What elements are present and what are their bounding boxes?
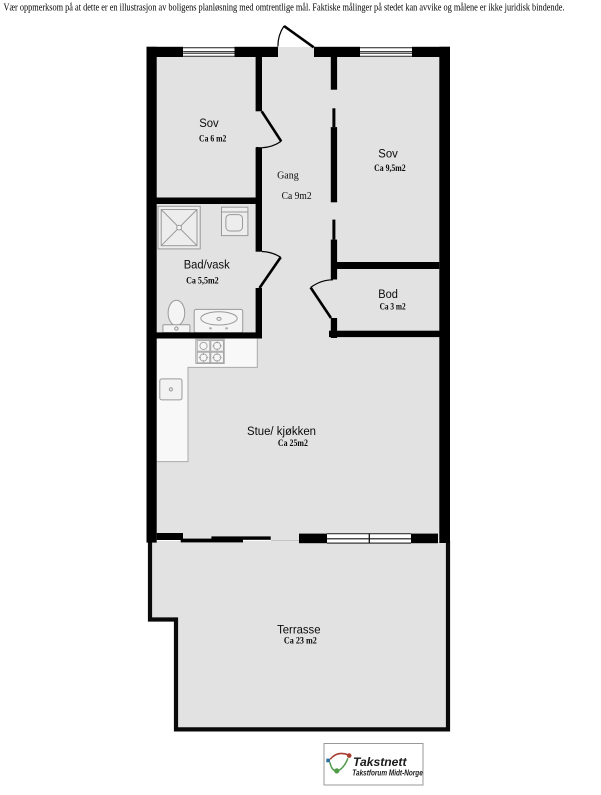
svg-text:Takstnett: Takstnett (353, 755, 408, 769)
svg-text:Gang: Gang (277, 169, 299, 181)
svg-text:Takstforum Midt-Norge: Takstforum Midt-Norge (352, 768, 423, 777)
svg-text:Bod: Bod (378, 287, 398, 301)
svg-text:Stue/ kjøkken: Stue/ kjøkken (247, 424, 316, 438)
svg-text:Bad/vask: Bad/vask (184, 257, 231, 271)
svg-text:Sov: Sov (199, 116, 219, 130)
svg-text:Ca 5,5m2: Ca 5,5m2 (186, 277, 219, 287)
svg-text:Ca 25m2: Ca 25m2 (278, 439, 308, 449)
svg-text:Sov: Sov (378, 147, 398, 161)
svg-text:Ca 9m2: Ca 9m2 (282, 190, 312, 202)
svg-text:Ca 6 m2: Ca 6 m2 (199, 134, 227, 144)
svg-text:Ca 23 m2: Ca 23 m2 (284, 637, 317, 647)
svg-text:Ca 3 m2: Ca 3 m2 (380, 303, 406, 313)
svg-text:Terrasse: Terrasse (277, 623, 321, 637)
svg-text:Vær oppmerksom på at dette er: Vær oppmerksom på at dette er en illustr… (4, 2, 565, 14)
svg-text:Ca 9,5m2: Ca 9,5m2 (374, 164, 406, 174)
